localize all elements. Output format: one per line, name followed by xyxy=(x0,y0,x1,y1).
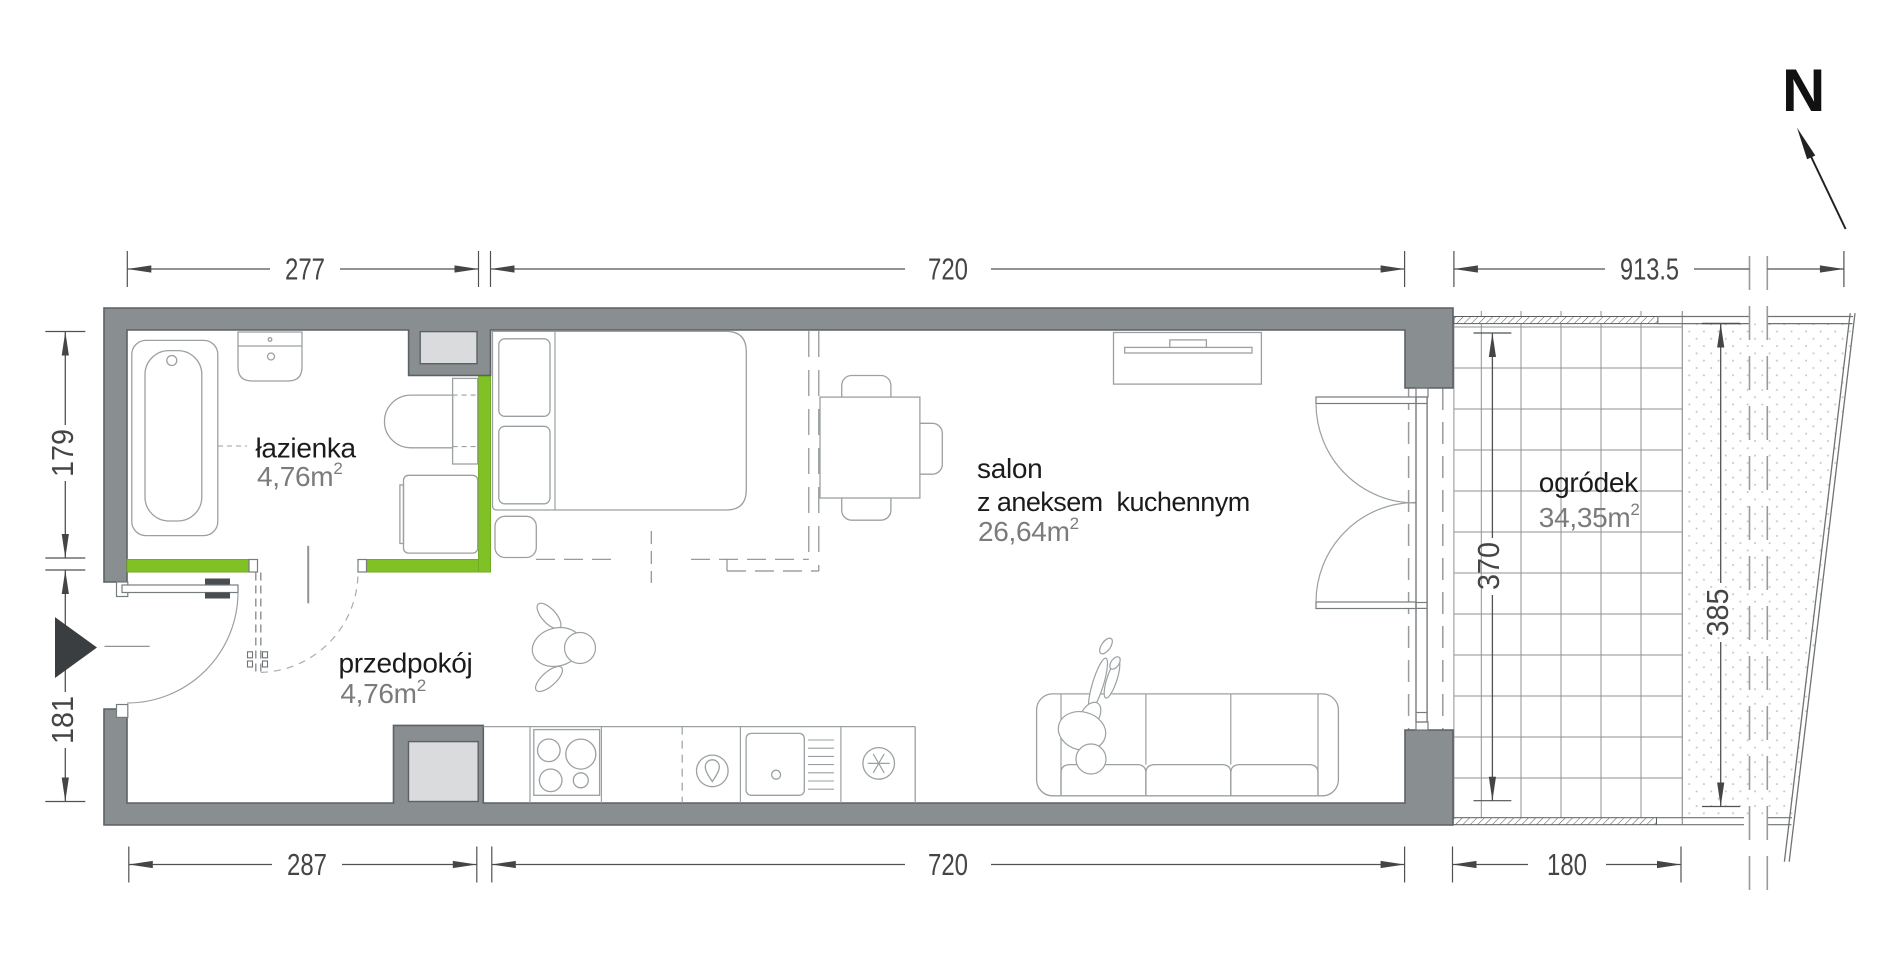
svg-text:4,76m2: 4,76m2 xyxy=(340,676,425,709)
svg-text:180: 180 xyxy=(1547,847,1587,882)
svg-text:720: 720 xyxy=(928,847,968,882)
svg-text:287: 287 xyxy=(287,847,327,882)
svg-text:ogródek: ogródek xyxy=(1539,467,1639,498)
svg-text:z aneksem kuchennym: z aneksem kuchennym xyxy=(977,487,1250,517)
svg-text:385: 385 xyxy=(1700,589,1735,637)
svg-text:34,35m2: 34,35m2 xyxy=(1539,500,1640,533)
svg-text:720: 720 xyxy=(928,252,968,287)
svg-text:przedpokój: przedpokój xyxy=(339,648,473,679)
svg-text:N: N xyxy=(1782,57,1825,124)
svg-text:4,76m2: 4,76m2 xyxy=(257,459,342,492)
svg-text:26,64m2: 26,64m2 xyxy=(978,514,1079,547)
svg-text:370: 370 xyxy=(1471,542,1506,590)
svg-text:salon: salon xyxy=(977,453,1042,484)
svg-text:913.5: 913.5 xyxy=(1620,252,1679,287)
svg-text:181: 181 xyxy=(45,696,80,744)
svg-text:179: 179 xyxy=(45,429,80,477)
svg-text:277: 277 xyxy=(285,252,325,287)
